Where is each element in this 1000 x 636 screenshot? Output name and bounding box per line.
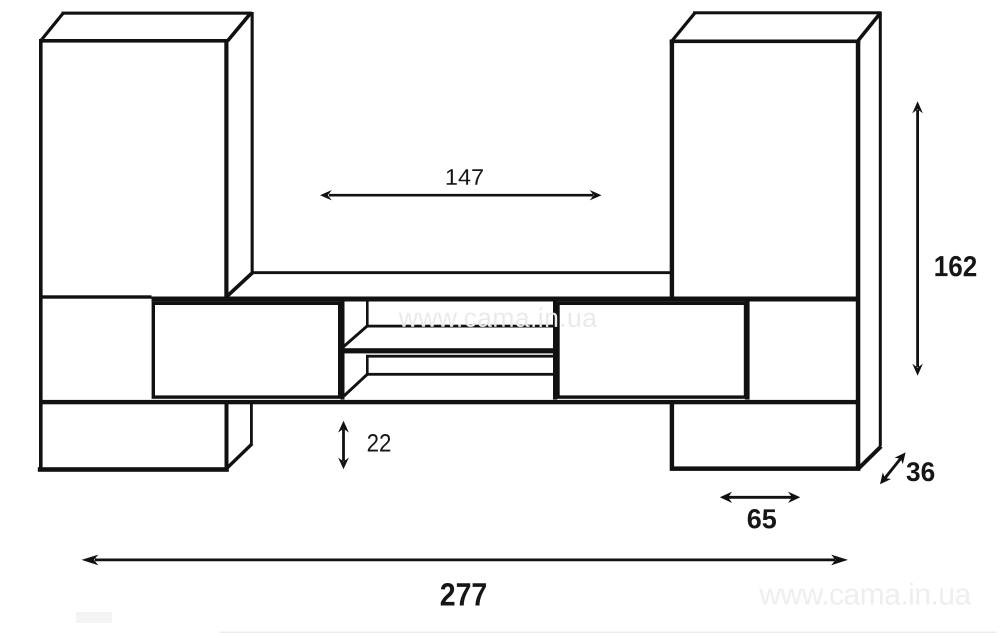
svg-text:36: 36	[906, 457, 935, 487]
svg-text:147: 147	[445, 165, 484, 190]
svg-text:www.cama.in.ua: www.cama.in.ua	[398, 303, 598, 333]
svg-text:65: 65	[747, 503, 777, 534]
svg-text:162: 162	[934, 251, 978, 283]
svg-text:277: 277	[440, 576, 488, 612]
svg-text:www.cama.in.ua: www.cama.in.ua	[758, 578, 971, 611]
svg-text:22: 22	[367, 429, 392, 457]
